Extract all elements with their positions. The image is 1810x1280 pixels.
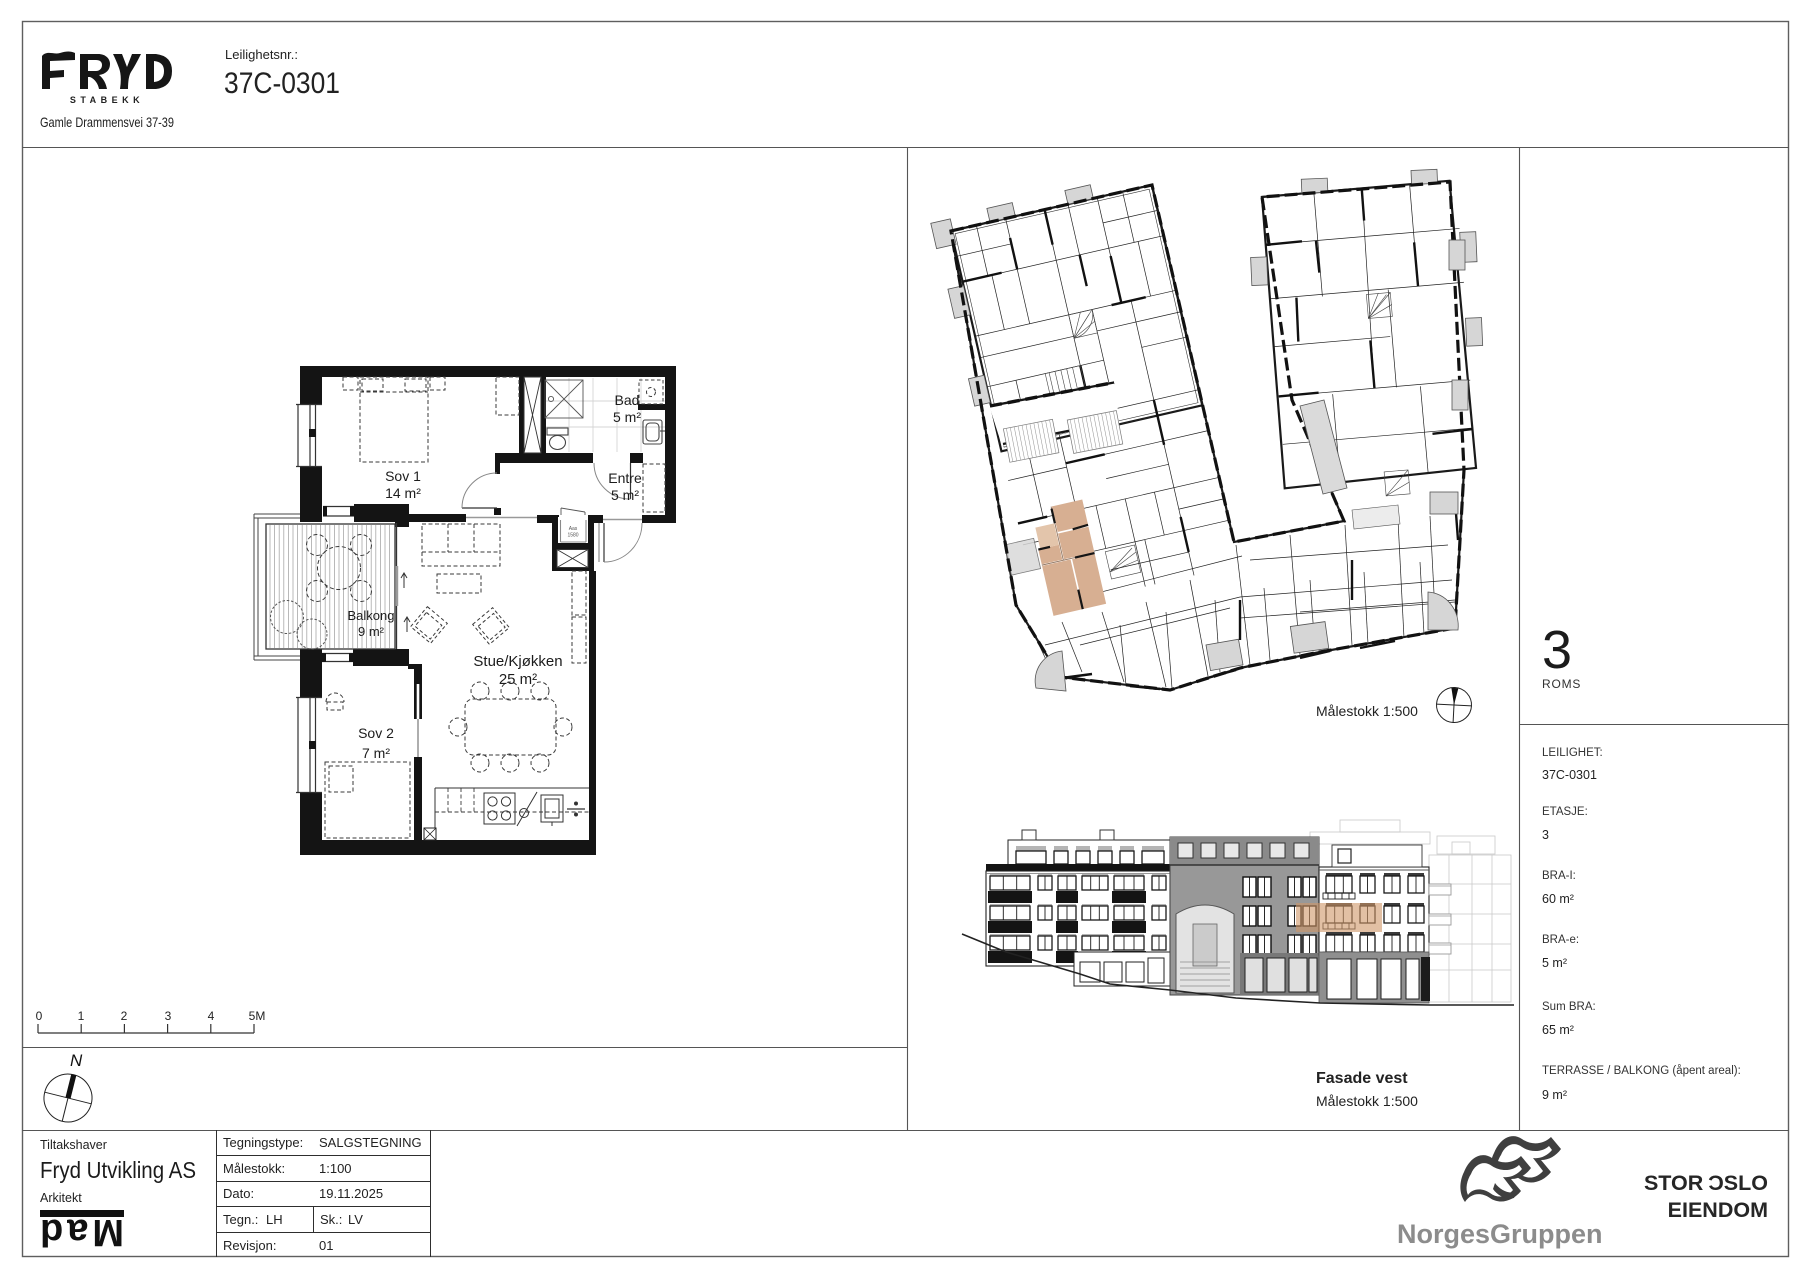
svg-text:Sum BRA:: Sum BRA: [1542, 1001, 1596, 1013]
svg-text:3: 3 [1542, 828, 1549, 842]
svg-text:7 m²: 7 m² [362, 745, 390, 761]
svg-text:5M: 5M [249, 1009, 266, 1023]
svg-text:0: 0 [36, 1009, 43, 1023]
svg-text:Dato:: Dato: [223, 1186, 254, 1201]
svg-text:Tegningstype:: Tegningstype: [223, 1135, 303, 1150]
svg-text:Aas: Aas [569, 526, 578, 532]
svg-text:STOR ƆSLO: STOR ƆSLO [1644, 1171, 1768, 1195]
svg-text:Tegn.:: Tegn.: [223, 1212, 258, 1227]
svg-text:STABEKK: STABEKK [70, 95, 144, 105]
svg-text:Balkong: Balkong [348, 608, 395, 623]
svg-text:BRA-I:: BRA-I: [1542, 870, 1576, 882]
svg-text:BRA-e:: BRA-e: [1542, 934, 1579, 946]
svg-text:37C-0301: 37C-0301 [224, 67, 340, 100]
svg-text:37C-0301: 37C-0301 [1542, 768, 1597, 782]
svg-text:5 m²: 5 m² [1542, 956, 1567, 970]
svg-text:14 m²: 14 m² [385, 485, 421, 501]
svg-text:9 m²: 9 m² [1542, 1088, 1567, 1102]
svg-text:4: 4 [208, 1009, 215, 1023]
svg-text:N: N [70, 1051, 83, 1070]
svg-text:Arkitekt: Arkitekt [40, 1191, 82, 1205]
svg-text:Stue/Kjøkken: Stue/Kjøkken [473, 653, 562, 670]
svg-text:LEILIGHET:: LEILIGHET: [1542, 747, 1603, 759]
svg-text:Revisjon:: Revisjon: [223, 1238, 276, 1253]
svg-text:1580: 1580 [567, 533, 578, 539]
svg-text:Mad: Mad [40, 1211, 124, 1253]
svg-text:Målestokk:: Målestokk: [223, 1161, 285, 1176]
svg-text:5 m²: 5 m² [611, 487, 639, 503]
svg-text:Fasade vest: Fasade vest [1316, 1070, 1408, 1087]
svg-text:Tiltakshaver: Tiltakshaver [40, 1138, 107, 1152]
svg-text:Gamle Drammensvei 37-39: Gamle Drammensvei 37-39 [40, 114, 174, 130]
svg-text:TERRASSE / BALKONG (åpent area: TERRASSE / BALKONG (åpent areal): [1542, 1065, 1741, 1077]
svg-text:65 m²: 65 m² [1542, 1023, 1574, 1037]
svg-text:Fryd Utvikling AS: Fryd Utvikling AS [40, 1157, 196, 1183]
svg-text:EIENDOM: EIENDOM [1668, 1198, 1768, 1222]
svg-text:Leilighetsnr.:: Leilighetsnr.: [225, 47, 298, 62]
svg-text:60 m²: 60 m² [1542, 892, 1574, 906]
svg-text:01: 01 [319, 1238, 333, 1253]
svg-text:19.11.2025: 19.11.2025 [319, 1186, 383, 1201]
svg-text:ROMS: ROMS [1542, 677, 1581, 691]
svg-text:NorgesGruppen: NorgesGruppen [1397, 1219, 1603, 1249]
svg-text:1:100: 1:100 [319, 1161, 352, 1176]
svg-text:Målestokk 1:500: Målestokk 1:500 [1316, 1093, 1418, 1109]
svg-text:3: 3 [165, 1009, 172, 1023]
svg-text:3: 3 [1542, 620, 1572, 680]
svg-text:9 m²: 9 m² [358, 624, 385, 639]
svg-text:Sk.:: Sk.: [320, 1212, 342, 1227]
svg-text:Bad: Bad [615, 392, 640, 408]
svg-text:5 m²: 5 m² [613, 409, 641, 425]
svg-text:Sov 1: Sov 1 [385, 468, 421, 484]
svg-text:Entre: Entre [608, 470, 642, 486]
svg-text:LH: LH [266, 1212, 283, 1227]
svg-text:LV: LV [348, 1212, 363, 1227]
svg-text:25 m²: 25 m² [499, 671, 537, 688]
svg-text:Målestokk 1:500: Målestokk 1:500 [1316, 703, 1418, 719]
svg-text:ETASJE:: ETASJE: [1542, 806, 1588, 818]
svg-text:2: 2 [121, 1009, 128, 1023]
svg-text:SALGSTEGNING: SALGSTEGNING [319, 1135, 422, 1150]
svg-text:1: 1 [78, 1009, 85, 1023]
svg-text:Sov 2: Sov 2 [358, 725, 394, 741]
